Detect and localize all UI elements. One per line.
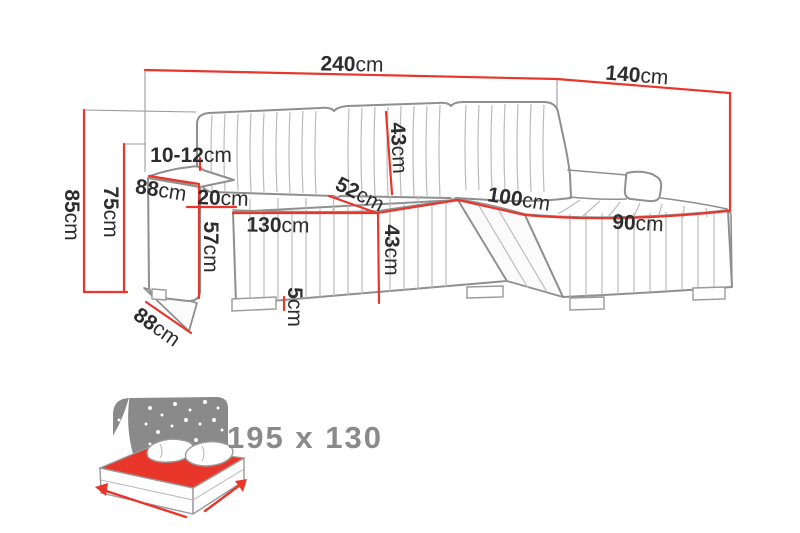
sofa-bed-icon <box>95 394 247 517</box>
dim-seat-front-height-label: 43cm <box>380 224 403 275</box>
dim-armrest-width-label: 20cm <box>197 186 249 211</box>
dim-backrest-cushion-height-label: 43cm <box>386 122 412 174</box>
dim-total-width-label: 240cm <box>320 52 384 76</box>
dim-armrest-top-thickness-label: 10-12cm <box>150 144 232 167</box>
dim-line-seat-front-height <box>378 213 379 303</box>
sleeping-area-label: 195 x 130 <box>227 420 383 455</box>
sofa-dimension-diagram: 240cm 140cm 85cm 75cm 10-12cm 88cm 20cm … <box>0 0 800 533</box>
dim-chaise-depth-label: 140cm <box>605 62 670 90</box>
dim-seat-width-label: 130cm <box>246 213 309 237</box>
chaise-armrest-pad <box>625 172 661 201</box>
dim-total-height-label: 85cm <box>60 189 83 240</box>
dim-armrest-side-height-label: 57cm <box>199 221 222 272</box>
diagram-canvas: 240cm 140cm 85cm 75cm 10-12cm 88cm 20cm … <box>0 0 800 533</box>
dim-leg-height-label: 5cm <box>283 287 306 327</box>
dim-chaise-width-label: 90cm <box>612 211 664 237</box>
dim-backrest-height-label: 75cm <box>99 186 122 237</box>
